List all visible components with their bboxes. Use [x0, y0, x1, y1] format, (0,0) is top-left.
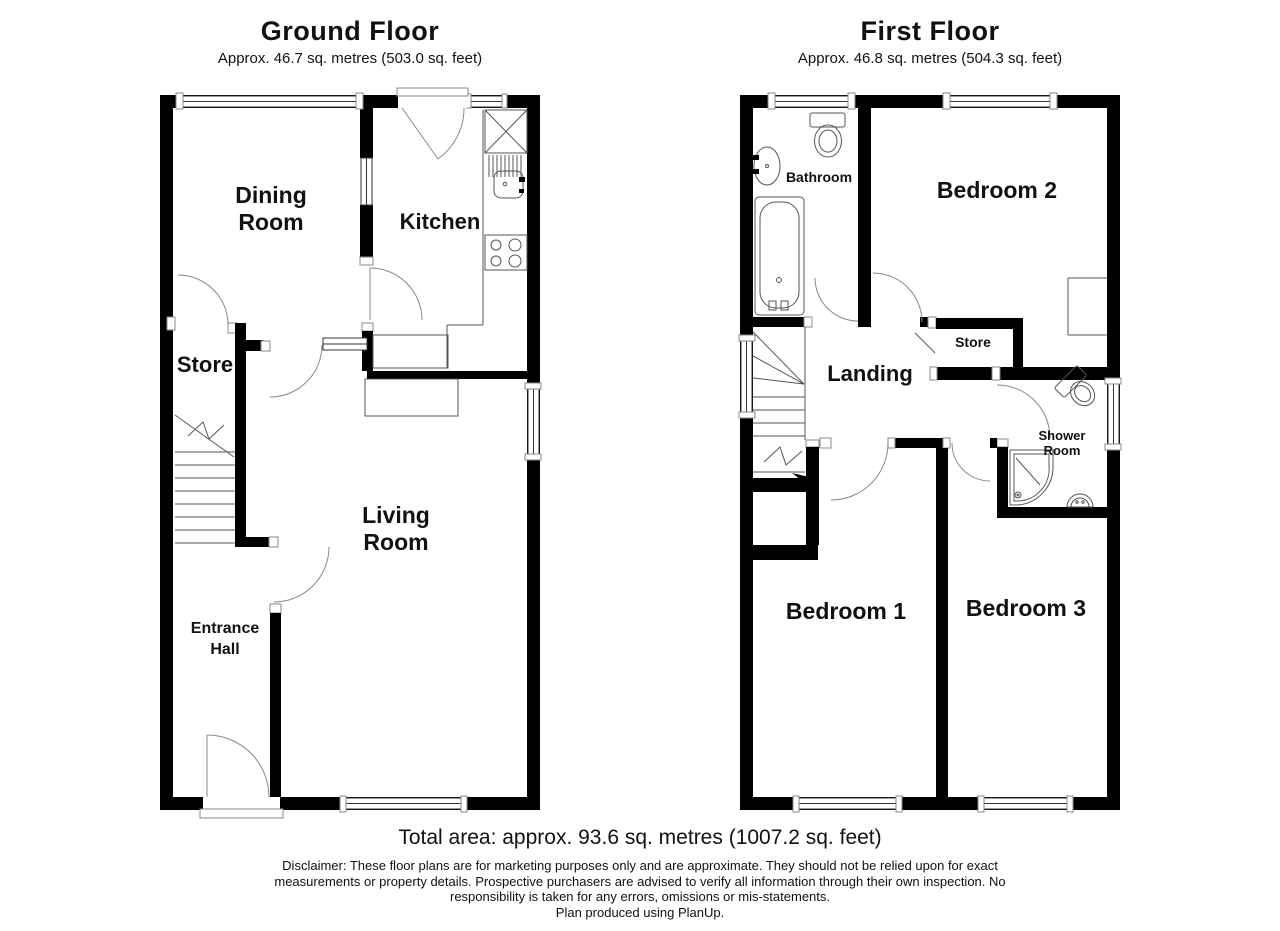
ff-staircase — [753, 327, 805, 472]
room-label-dining-line2: Room — [238, 209, 303, 235]
room-label-shower-line1: Shower — [1039, 428, 1086, 443]
gf-staircase — [175, 415, 235, 543]
room-label-store-gf: Store — [177, 352, 233, 377]
draining-board-icon — [489, 155, 521, 177]
hob-icon — [485, 235, 527, 270]
store-door-leaf — [915, 333, 935, 353]
disclaimer-line1: Disclaimer: These floor plans are for ma… — [0, 858, 1280, 874]
room-label-landing: Landing — [827, 361, 913, 386]
floorplan-page: Ground Floor Approx. 46.7 sq. metres (50… — [0, 0, 1280, 931]
ground-floor-plan: Dining Room Kitchen Store Living Room En… — [160, 95, 540, 810]
toilet-icon — [810, 113, 845, 157]
basin-icon — [752, 147, 780, 185]
room-label-living-line1: Living — [362, 502, 430, 528]
total-area-text: Total area: approx. 93.6 sq. metres (100… — [0, 826, 1280, 850]
corner-basin-icon — [1067, 494, 1093, 507]
ground-floor-title-block: Ground Floor Approx. 46.7 sq. metres (50… — [160, 16, 540, 67]
first-floor-plan: Bathroom Bedroom 2 Landing Store Shower … — [740, 95, 1120, 810]
plan-credit: Plan produced using PlanUp. — [0, 905, 1280, 921]
bedroom2-wardrobe — [1068, 278, 1107, 335]
kitchen-unit — [373, 335, 448, 368]
ground-floor-title: Ground Floor — [160, 16, 540, 47]
gf-room-labels: Dining Room Kitchen Store Living Room En… — [177, 182, 480, 658]
room-label-entrance-line2: Hall — [210, 641, 239, 658]
room-label-shower-line2: Room — [1044, 443, 1081, 458]
disclaimer-line2: measurements or property details. Prospe… — [0, 874, 1280, 890]
worktop-crosshatch-icon — [485, 110, 527, 153]
ff-door-arcs — [815, 273, 1050, 500]
shower-tray-icon — [1010, 450, 1053, 505]
first-floor-title-block: First Floor Approx. 46.8 sq. metres (504… — [740, 16, 1120, 67]
room-label-living-line2: Room — [363, 529, 428, 555]
first-floor-title: First Floor — [740, 16, 1120, 47]
ground-floor-subtitle: Approx. 46.7 sq. metres (503.0 sq. feet) — [160, 50, 540, 67]
room-label-bedroom2: Bedroom 2 — [937, 177, 1057, 203]
room-label-bathroom: Bathroom — [786, 169, 852, 185]
disclaimer-line3: responsibility is taken for any errors, … — [0, 889, 1280, 905]
bathroom-fixtures — [752, 113, 845, 315]
room-label-kitchen: Kitchen — [400, 209, 481, 234]
room-label-bedroom3: Bedroom 3 — [966, 595, 1086, 621]
room-label-dining-line1: Dining — [235, 182, 307, 208]
bath-icon — [755, 197, 804, 315]
gf-kitchen-fixtures — [373, 110, 527, 368]
first-floor-subtitle: Approx. 46.8 sq. metres (504.3 sq. feet) — [740, 50, 1120, 67]
footer: Total area: approx. 93.6 sq. metres (100… — [0, 826, 1280, 920]
room-label-store-ff: Store — [955, 334, 991, 350]
room-label-entrance-line1: Entrance — [191, 620, 260, 637]
room-label-bedroom1: Bedroom 1 — [786, 598, 906, 624]
living-room-furniture — [365, 379, 458, 416]
